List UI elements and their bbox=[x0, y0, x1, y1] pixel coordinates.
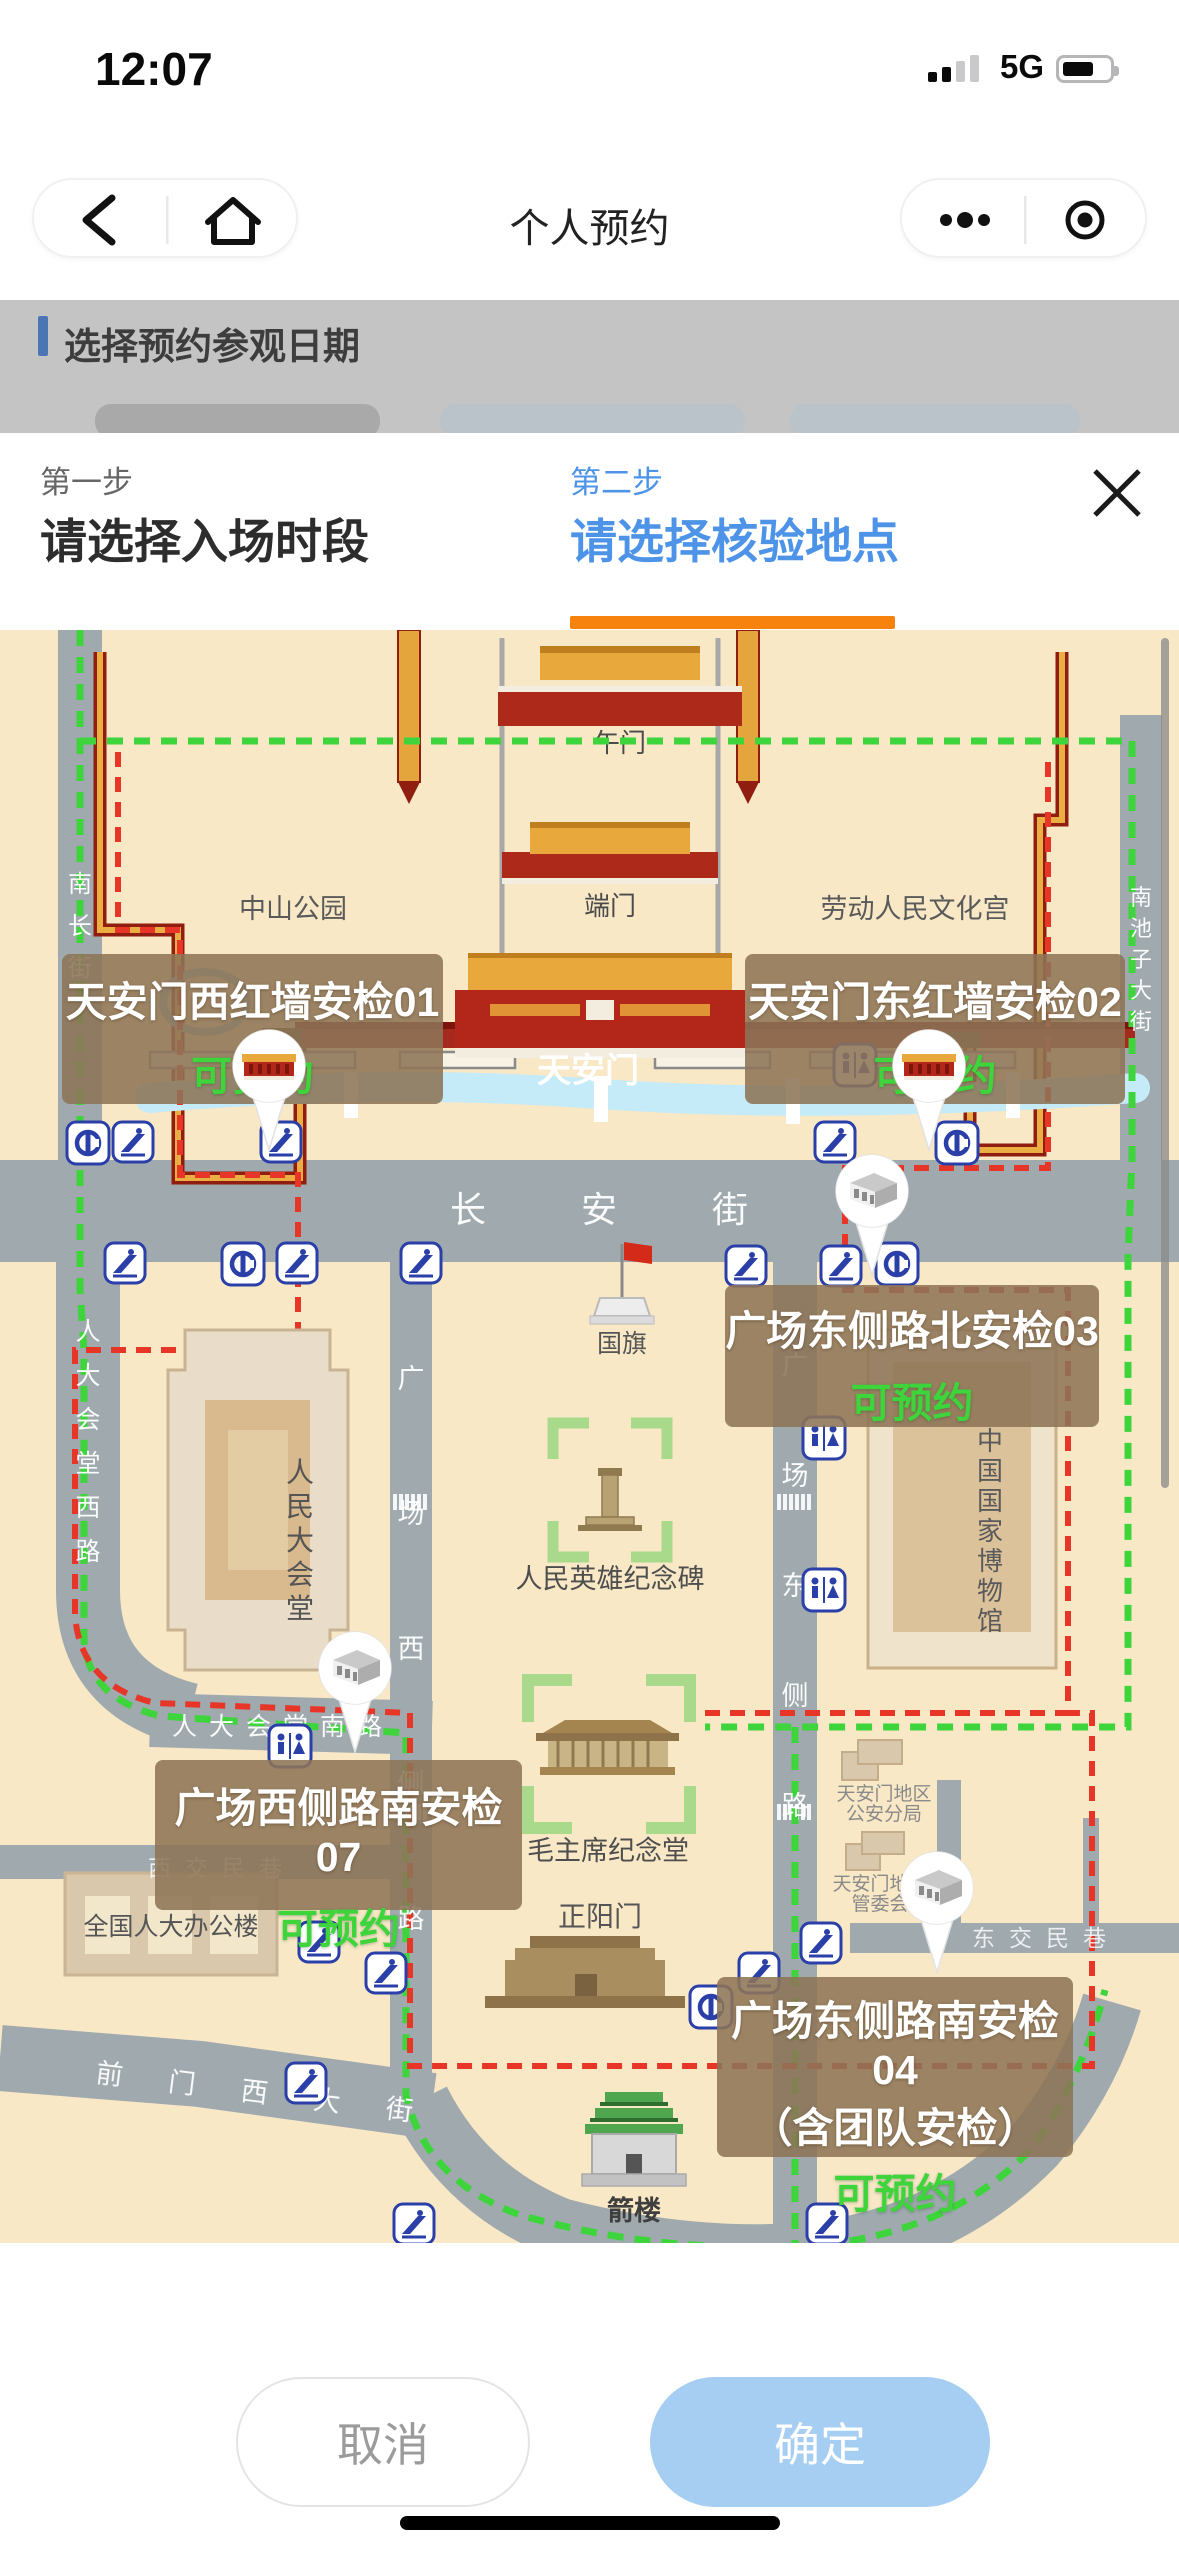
duanmen-gate bbox=[502, 822, 718, 884]
dimmed-backdrop: 选择预约参观日期 bbox=[0, 300, 1179, 433]
street-changan: 长安街 bbox=[450, 1189, 843, 1230]
escalator-icon bbox=[366, 1953, 406, 1993]
wumen-gate bbox=[398, 630, 759, 804]
memorial-icon bbox=[536, 1720, 679, 1775]
zhongshan-park-label: 中山公园 bbox=[239, 894, 347, 924]
tiananmen-label: 天安门 bbox=[537, 1052, 639, 1090]
escalator-icon bbox=[105, 1243, 145, 1283]
status-time: 12:07 bbox=[95, 42, 213, 96]
monument-icon bbox=[578, 1468, 642, 1531]
confirm-button[interactable]: 确定 bbox=[650, 2377, 990, 2507]
checkpoint-label-04[interactable]: 广场东侧路南安检04 （含团队安检） 可预约 bbox=[717, 1977, 1073, 2157]
section-title: 选择预约参观日期 bbox=[64, 316, 360, 370]
miniprogram-capsule bbox=[900, 178, 1147, 258]
section-accent-bar bbox=[38, 316, 48, 356]
jianlou-label: 箭楼 bbox=[607, 2195, 661, 2226]
monument-label: 人民英雄纪念碑 bbox=[516, 1564, 705, 1594]
active-tab-underline bbox=[570, 616, 895, 629]
escalator-icon bbox=[801, 1923, 841, 1963]
police-label-2: 公安分局 bbox=[846, 1803, 922, 1825]
street-nanchizi: 南池子大街 bbox=[1130, 885, 1152, 1034]
map[interactable]: 午门 端门 bbox=[0, 630, 1179, 2243]
network-type: 5G bbox=[1000, 48, 1044, 86]
step2-title: 请选择核验地点 bbox=[570, 503, 899, 572]
police-label-1: 天安门地区 bbox=[836, 1783, 931, 1805]
checkpoint-pin-04[interactable] bbox=[882, 1838, 992, 1978]
checkpoint-sheet: 第一步 请选择入场时段 第二步 请选择核验地点 bbox=[0, 433, 1179, 2556]
step2-label: 第二步 bbox=[570, 457, 663, 502]
escalator-icon bbox=[113, 1122, 153, 1162]
escalator-icon bbox=[726, 1246, 766, 1286]
street-dongjiaomin: 东交民巷 bbox=[972, 1925, 1120, 1951]
battery-icon bbox=[1056, 55, 1114, 83]
checkpoint-pin-01[interactable] bbox=[214, 1016, 324, 1156]
subway-icon bbox=[67, 1122, 109, 1164]
checkpoint-pin-02[interactable] bbox=[874, 1016, 984, 1156]
culture-palace-label: 劳动人民文化宫 bbox=[821, 894, 1010, 924]
toilet-icon bbox=[803, 1569, 845, 1611]
more-menu-icon[interactable] bbox=[940, 212, 990, 228]
checkpoint-label-07[interactable]: 广场西侧路南安检07 可预约 bbox=[155, 1760, 522, 1910]
close-icon[interactable] bbox=[1085, 461, 1149, 525]
step1-label: 第一步 bbox=[40, 457, 133, 502]
dimmed-date-pill bbox=[790, 404, 1080, 433]
signal-icon bbox=[928, 52, 979, 82]
close-miniprogram-icon[interactable] bbox=[1068, 203, 1102, 237]
escalator-icon bbox=[394, 2204, 434, 2243]
checkpoint-label-03[interactable]: 广场东侧路北安检03 可预约 bbox=[725, 1285, 1099, 1427]
escalator-icon bbox=[401, 1243, 441, 1283]
dimmed-date-pill bbox=[95, 404, 380, 433]
duanmen-label: 端门 bbox=[584, 891, 636, 921]
zhengyangmen-label: 正阳门 bbox=[558, 1901, 642, 1932]
great-hall-label: 人民大会堂 bbox=[286, 1457, 314, 1624]
phone-screen: 12:07 5G 个人预约 选择预约参观日期 bbox=[0, 0, 1179, 2556]
police-building bbox=[842, 1740, 902, 1780]
step1-title: 请选择入场时段 bbox=[40, 503, 369, 572]
subway-icon bbox=[222, 1243, 264, 1285]
jianlou-icon bbox=[582, 2092, 686, 2186]
flag-label: 国旗 bbox=[597, 1330, 647, 1358]
dimmed-date-pill bbox=[440, 404, 745, 433]
escalator-icon bbox=[286, 2063, 326, 2103]
memorial-label: 毛主席纪念堂 bbox=[527, 1836, 689, 1866]
map-scrollbar[interactable] bbox=[1161, 638, 1169, 1488]
checkpoint-pin-03[interactable] bbox=[817, 1141, 927, 1281]
museum-label: 中国国家博物馆 bbox=[977, 1426, 1003, 1636]
home-indicator[interactable] bbox=[400, 2516, 780, 2530]
escalator-icon bbox=[277, 1243, 317, 1283]
cancel-button[interactable]: 取消 bbox=[236, 2377, 530, 2507]
tiananmen-gate bbox=[455, 953, 745, 1058]
checkpoint-pin-07[interactable] bbox=[300, 1618, 410, 1758]
